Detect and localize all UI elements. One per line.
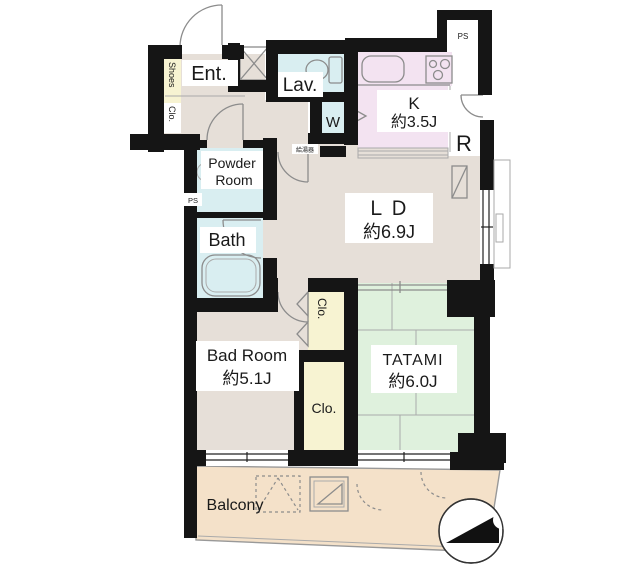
floor-plan: Ent. Shoes Clo. Lav. W K 約3.5J R PS PS 給… (0, 0, 640, 569)
entrance-door-arc (180, 5, 222, 47)
lavatory-label: Lav. (283, 75, 318, 96)
kitchen-size: 約3.5J (391, 113, 437, 131)
bath-label: Bath (208, 230, 245, 250)
tatami-label: TATAMI (382, 352, 443, 369)
ld-label: ＬＤ (366, 198, 412, 220)
closet-hall-label: Clo. (312, 400, 337, 416)
ld-size: 約6.9J (363, 222, 415, 242)
refrigerator-label: R (456, 131, 472, 156)
bedroom-size: 約5.1J (222, 369, 271, 388)
ps-top-label: PS (458, 32, 469, 41)
ps-side-label: PS (188, 196, 198, 205)
tatami-size: 約6.0J (388, 372, 437, 391)
water-heater-label: 給湯器 (296, 146, 314, 154)
shoes-closet-label-1: Shoes (167, 62, 177, 88)
shoes-closet-label-2: Clo. (167, 106, 177, 122)
powder-room-label-1: Powder (208, 155, 256, 171)
kitchen-label: K (408, 94, 420, 113)
closet-bedroom-label: Clo. (315, 298, 329, 319)
bedroom-label: Bad Room (207, 346, 287, 365)
entrance-label: Ent. (191, 63, 227, 85)
washer-label: W (326, 114, 341, 131)
powder-room-label-2: Room (215, 172, 252, 188)
floor-plan-svg: Ent. Shoes Clo. Lav. W K 約3.5J R PS PS 給… (0, 0, 640, 569)
ld-window-handle (496, 214, 503, 242)
balcony-label: Balcony (207, 497, 264, 514)
